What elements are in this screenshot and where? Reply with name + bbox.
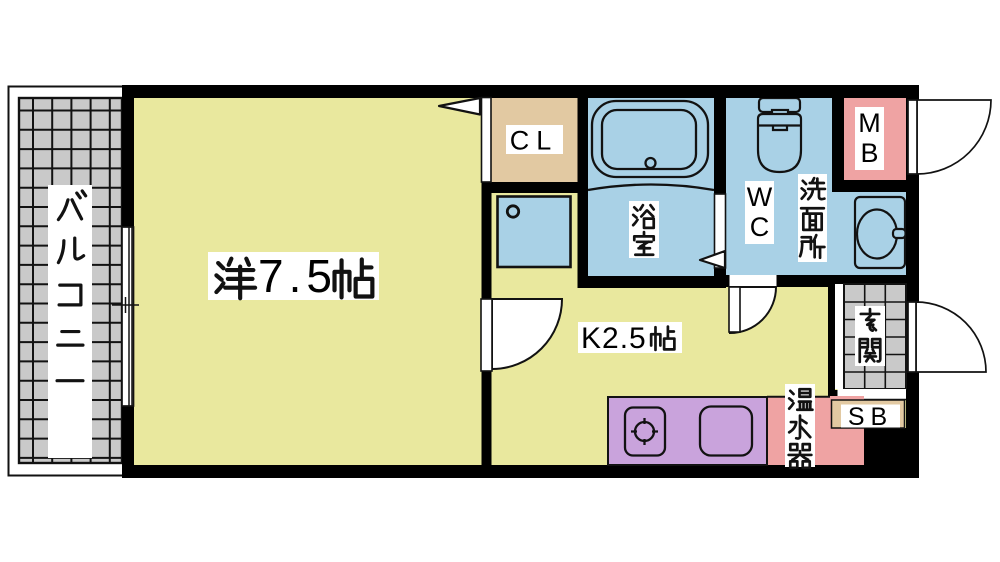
svg-text:K2.5: K2.5 — [581, 322, 647, 355]
svg-text:CL: CL — [510, 126, 559, 156]
svg-text:SB: SB — [848, 403, 893, 431]
svg-text:7.5: 7.5 — [258, 250, 337, 302]
svg-text:C: C — [750, 212, 770, 242]
svg-text:B: B — [860, 138, 878, 168]
svg-text:W: W — [747, 182, 773, 212]
svg-text:M: M — [858, 108, 881, 138]
